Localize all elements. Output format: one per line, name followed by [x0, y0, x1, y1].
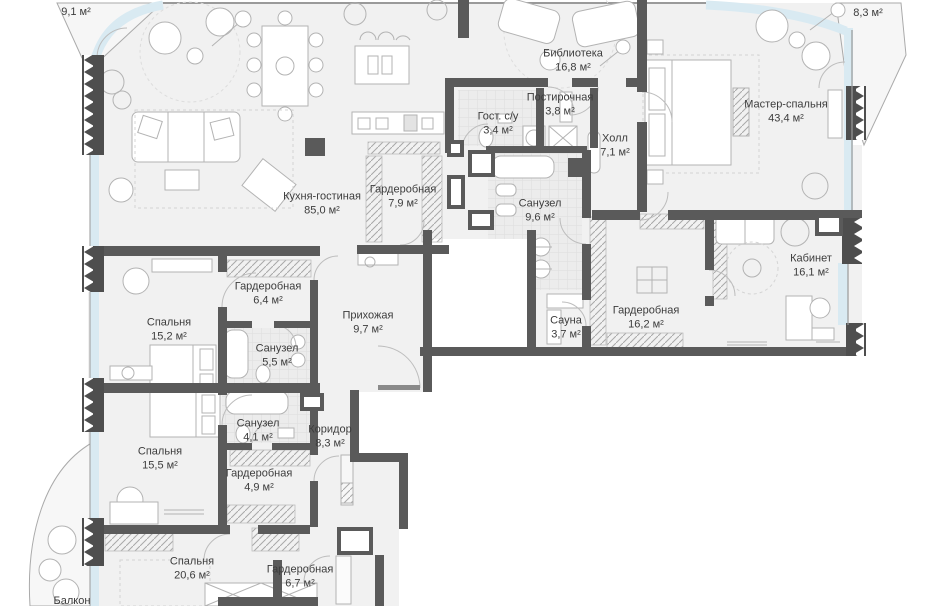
- label-bedroom-1: Спальня15,2 м²: [147, 316, 191, 345]
- label-bathroom-2: Санузел5,5 м²: [256, 342, 299, 371]
- label-study: Кабинет16,1 м²: [790, 252, 832, 281]
- label-bedroom-3: Спальня20,6 м²: [170, 555, 214, 584]
- label-corridor: Коридор8,3 м²: [308, 423, 351, 452]
- kitchen-counter: [352, 112, 444, 134]
- label-sauna: Сауна3,7 м²: [550, 314, 582, 343]
- label-master-bedroom: Мастер-спальня43,4 м²: [744, 98, 827, 127]
- label-library: Библиотека16,8 м²: [543, 47, 603, 76]
- label-wardrobe-4: Гардеробная6,7 м²: [267, 563, 334, 592]
- label-bathroom-3: Санузел4,1 м²: [237, 417, 280, 446]
- label-terrace-top-left: 9,1 м²: [61, 5, 91, 19]
- label-entry-hall: Прихожая9,7 м²: [343, 309, 394, 338]
- label-bathroom-master: Санузел9,6 м²: [519, 197, 562, 226]
- label-wardrobe-3: Гардеробная4,9 м²: [226, 467, 293, 496]
- label-bedroom-2: Спальня15,5 м²: [138, 445, 182, 474]
- label-balcony: Балкон: [54, 594, 91, 606]
- label-terrace-top-right: 8,3 м²: [853, 6, 883, 20]
- label-wardrobe-master: Гардеробная16,2 м²: [613, 304, 680, 333]
- label-wardrobe-kitchen: Гардеробная7,9 м²: [370, 183, 437, 212]
- label-kitchen-living: Кухня-гостиная85,0 м²: [283, 190, 361, 219]
- floor-plan-drawing: [0, 0, 926, 606]
- label-laundry: Постирочная3,8 м²: [527, 91, 594, 120]
- label-wardrobe-2: Гардеробная6,4 м²: [235, 280, 302, 309]
- floor-plan: 9,1 м² 8,3 м² Библиотека16,8 м² Постироч…: [0, 0, 926, 606]
- label-hall: Холл7,1 м²: [600, 132, 630, 161]
- label-guest-wc: Гост. с/у3,4 м²: [478, 110, 519, 139]
